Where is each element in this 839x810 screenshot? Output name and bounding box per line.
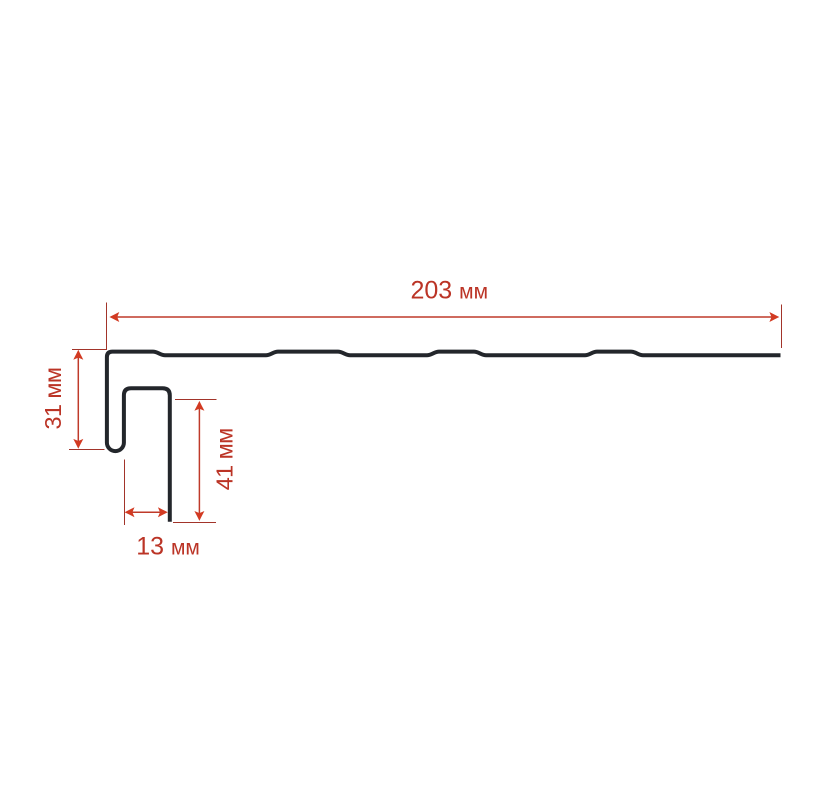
svg-text:13 мм: 13 мм — [136, 533, 200, 561]
svg-text:203 мм: 203 мм — [411, 277, 489, 305]
svg-text:41 мм: 41 мм — [211, 428, 237, 490]
svg-text:31 мм: 31 мм — [40, 368, 66, 430]
